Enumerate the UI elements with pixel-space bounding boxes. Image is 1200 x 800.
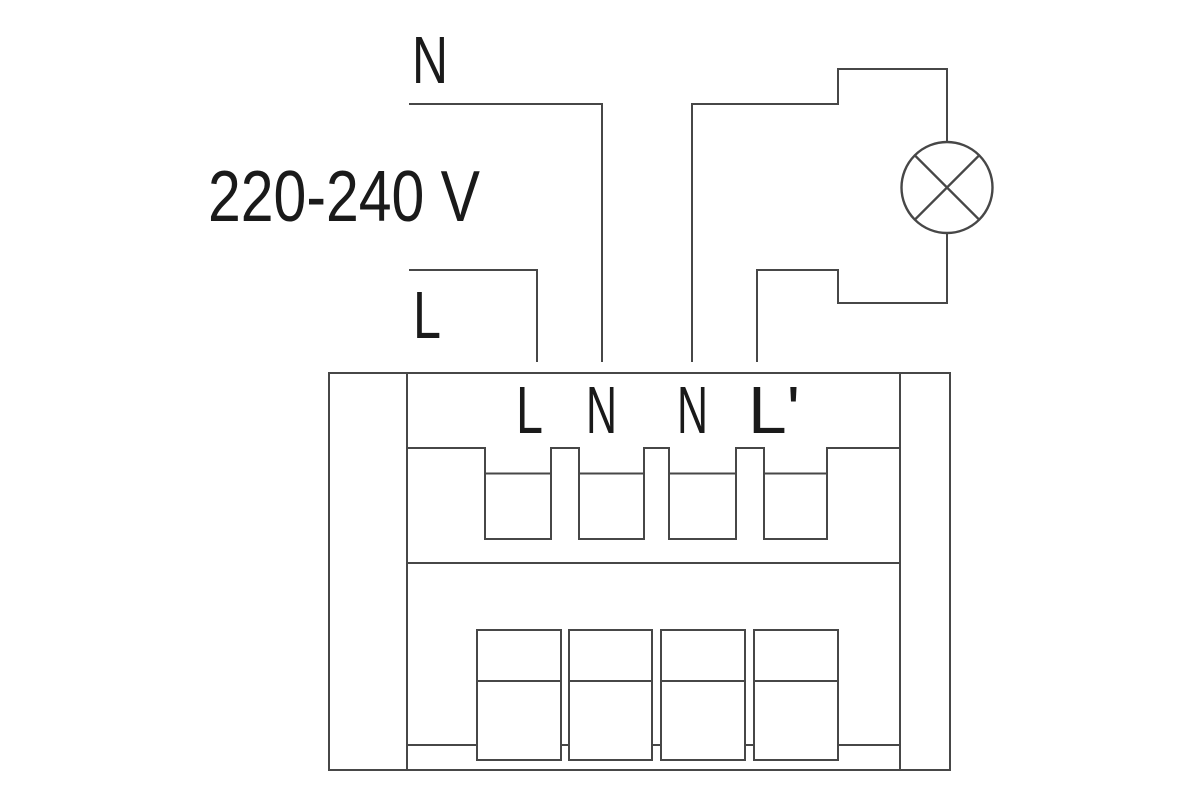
lamp-circuit [692,69,993,362]
lamp-icon [902,142,993,233]
clamp-block [754,630,838,760]
clamp-block [661,630,745,760]
terminal-label-n2: N [677,373,708,448]
clamp-blocks [477,630,838,760]
device-body [329,373,950,770]
terminal-label-n1: N [586,373,617,448]
terminal-well-profile [407,448,900,539]
clamp-block [477,630,561,760]
diagram-canvas: N 220-240 V L L N N L' [0,0,1200,800]
lamp-feed-wire [692,69,947,362]
wiring-diagram: N 220-240 V L L N N L' [0,0,1200,800]
terminal-label-l: L [516,373,543,448]
supply-neutral-label: N [412,23,448,98]
clamp-block [569,630,652,760]
terminal-label-l-switched: L' [748,373,800,448]
lamp-return-wire [757,233,947,362]
labels: N 220-240 V L L N N L' [208,23,800,448]
lamp-cross [915,155,979,219]
supply-live-label: L [413,278,441,353]
voltage-label: 220-240 V [208,157,480,237]
